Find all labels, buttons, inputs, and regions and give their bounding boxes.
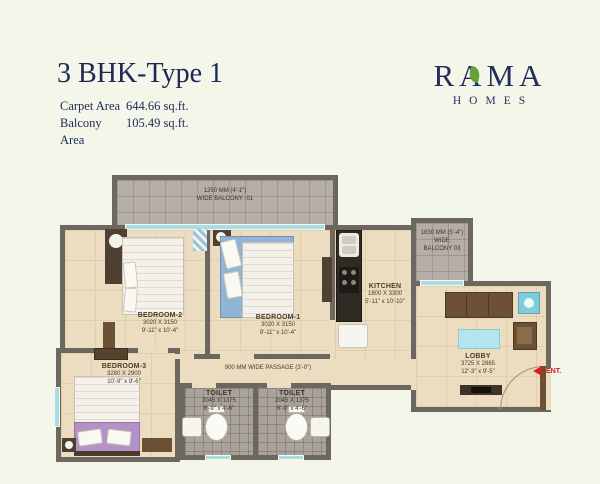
entry-arrow-icon <box>533 366 542 376</box>
kitchen-fridge <box>338 324 368 348</box>
label-toilet1: TOILET 2045 X 1375 6'-9" x 4'-6" <box>186 389 252 414</box>
area-summary: Carpet Area 644.66 sq.ft. Balcony Area 1… <box>60 98 189 149</box>
floor-plan: 1250 MM (4'-1") WIDE BALCONY -01 1630 MM… <box>10 172 566 468</box>
wc-toilet2 <box>285 413 308 441</box>
sink-basin <box>342 246 356 254</box>
door-gap-kitchen <box>330 320 335 359</box>
label-bedroom3: BEDROOM-3 3280 X 2900 10'-9" x 9'-6" <box>80 362 168 387</box>
logo-sub-text: HOMES <box>410 95 570 107</box>
window-balcony-03 <box>420 280 464 286</box>
wardrobe-bedroom1 <box>322 257 332 302</box>
entry-label: ENT. <box>546 368 561 375</box>
label-kitchen: KITCHEN 1800 X 3300 5'-11" x 10'-10" <box>354 282 416 307</box>
pillow <box>123 261 139 288</box>
door-gap-bedroom2 <box>160 354 194 359</box>
floor-plan-page: 3 BHK-Type 1 Carpet Area 644.66 sq.ft. B… <box>0 0 600 484</box>
window-toilet-2 <box>278 455 304 460</box>
dresser-bedroom3 <box>94 348 128 360</box>
burner <box>351 270 356 275</box>
tv-icon <box>471 387 491 393</box>
washbasin-toilet2 <box>310 417 330 437</box>
label-bedroom2: BEDROOM-2 3020 X 3150 9'-11" x 10'-4" <box>118 311 202 336</box>
coffee-table <box>458 329 500 349</box>
logo-brand-text: RAMA <box>410 58 570 94</box>
label-toilet2: TOILET 2045 X 1375 6'-9" x 4'-6" <box>259 389 325 414</box>
label-lobby: LOBBY 3725 X 2865 12'-3" x 9'-5" <box>438 352 518 377</box>
label-balcony-03: 1630 MM (5'-4") WIDE BALCONY 03 <box>413 230 471 253</box>
washbasin-toilet1 <box>182 417 202 437</box>
sofa-cushion-divider <box>466 294 467 316</box>
door-gap-toilet2 <box>267 383 291 388</box>
armchair-seat <box>517 327 532 344</box>
duvet-bedroom1 <box>242 242 294 318</box>
door-gap-bedroom1 <box>220 354 254 359</box>
lamp-bedroom3 <box>65 441 73 449</box>
shelf-bedroom3 <box>142 438 172 452</box>
balcony-area-value: 105.49 sq.ft. <box>126 115 189 149</box>
lamp-table-bedroom2 <box>109 234 123 248</box>
label-passage: 900 MM WIDE PASSAGE (3'-0") <box>178 365 358 373</box>
page-title: 3 BHK-Type 1 <box>57 58 223 90</box>
door-gap-toilet1 <box>192 383 216 388</box>
wall-segment <box>326 385 416 390</box>
sofa <box>445 292 513 318</box>
sink-basin <box>342 236 356 244</box>
burner <box>342 270 347 275</box>
decor-bedroom2 <box>193 229 207 251</box>
carpet-area-label: Carpet Area <box>60 98 126 115</box>
pillow <box>123 287 138 312</box>
window-toilet-1 <box>205 455 231 460</box>
wc-toilet1 <box>205 413 228 441</box>
balcony-area-row: Balcony Area 105.49 sq.ft. <box>60 115 189 149</box>
headboard-bedroom3 <box>74 451 140 456</box>
burner <box>342 280 347 285</box>
opening-passage-lobby <box>411 359 416 390</box>
sofa-cushion-divider <box>488 294 489 316</box>
label-bedroom1: BEDROOM-1 3020 X 3150 9'-11" x 10'-4" <box>230 313 326 338</box>
window-bedroom-3 <box>54 387 60 427</box>
pillow <box>106 429 132 447</box>
balcony-area-label: Balcony Area <box>60 115 126 149</box>
rama-homes-logo: RAMA HOMES <box>410 58 570 107</box>
carpet-area-value: 644.66 sq.ft. <box>126 98 189 115</box>
table-decor <box>524 298 534 308</box>
carpet-area-row: Carpet Area 644.66 sq.ft. <box>60 98 189 115</box>
door-gap-bedroom3 <box>138 348 168 353</box>
label-balcony-01: 1250 MM (4'-1") WIDE BALCONY -01 <box>140 188 310 204</box>
